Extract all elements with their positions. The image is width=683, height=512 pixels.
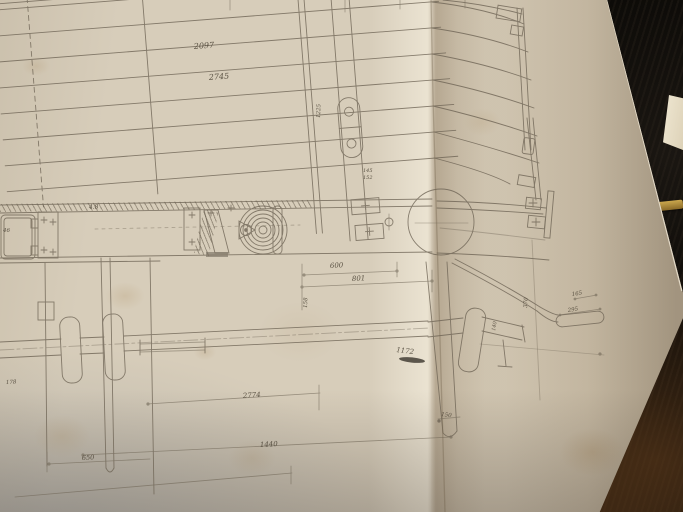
- dim-label-2774: 2774: [242, 391, 261, 400]
- dimension-lines: [15, 262, 604, 497]
- folded-plate-paper: 2097 2745 1225 145 152 4.8 46 600 801 15…: [0, 0, 683, 512]
- ink-smudge: [399, 356, 425, 364]
- left-end-plate: [1, 212, 58, 259]
- spring-bracket-group: [184, 205, 287, 257]
- dim-label-165: 165: [571, 290, 583, 298]
- dim-label-48: 4.8: [88, 203, 99, 211]
- wheel-hub-left: [59, 317, 82, 384]
- dim-label-1225: 1225: [316, 103, 323, 118]
- buffer-disc: [408, 189, 474, 255]
- dim-label-46: 46: [2, 228, 10, 234]
- dim-label-801: 801: [352, 274, 366, 283]
- dim-label-145: 145: [363, 168, 373, 174]
- photo-of-folded-engineering-plate: 2097 2745 1225 145 152 4.8 46 600 801 15…: [0, 0, 683, 512]
- fold-crease: [431, 0, 445, 512]
- dim-label-150: 150: [441, 412, 453, 419]
- dim-label-158: 158: [303, 297, 309, 308]
- planks-curved-fan: [432, 0, 539, 184]
- dim-label-178: 178: [6, 379, 17, 386]
- solebar-beam: [0, 191, 554, 263]
- dim-label-2745: 2745: [208, 72, 230, 82]
- bent-step-rod: [452, 240, 604, 400]
- dim-label-650: 650: [82, 453, 95, 462]
- dim-label-140: 140: [491, 320, 499, 331]
- dimension-labels: 2097 2745 1225 145 152 4.8 46 600 801 15…: [2, 41, 583, 462]
- door-hinge-strap: [327, 0, 384, 241]
- wagon-side-planks: [0, 0, 464, 267]
- dim-label-152: 152: [363, 175, 373, 181]
- undergear: [0, 258, 525, 494]
- dim-label-600: 600: [330, 261, 344, 270]
- wagon-drawing: 2097 2745 1225 145 152 4.8 46 600 801 15…: [0, 0, 683, 512]
- dim-label-370: 370: [523, 297, 530, 308]
- dim-label-2097: 2097: [193, 41, 216, 52]
- dim-label-1172: 1172: [396, 346, 415, 356]
- beam-end-cap: [544, 191, 554, 238]
- dim-label-1440: 1440: [260, 440, 279, 449]
- wheel-hub-inner: [102, 314, 125, 381]
